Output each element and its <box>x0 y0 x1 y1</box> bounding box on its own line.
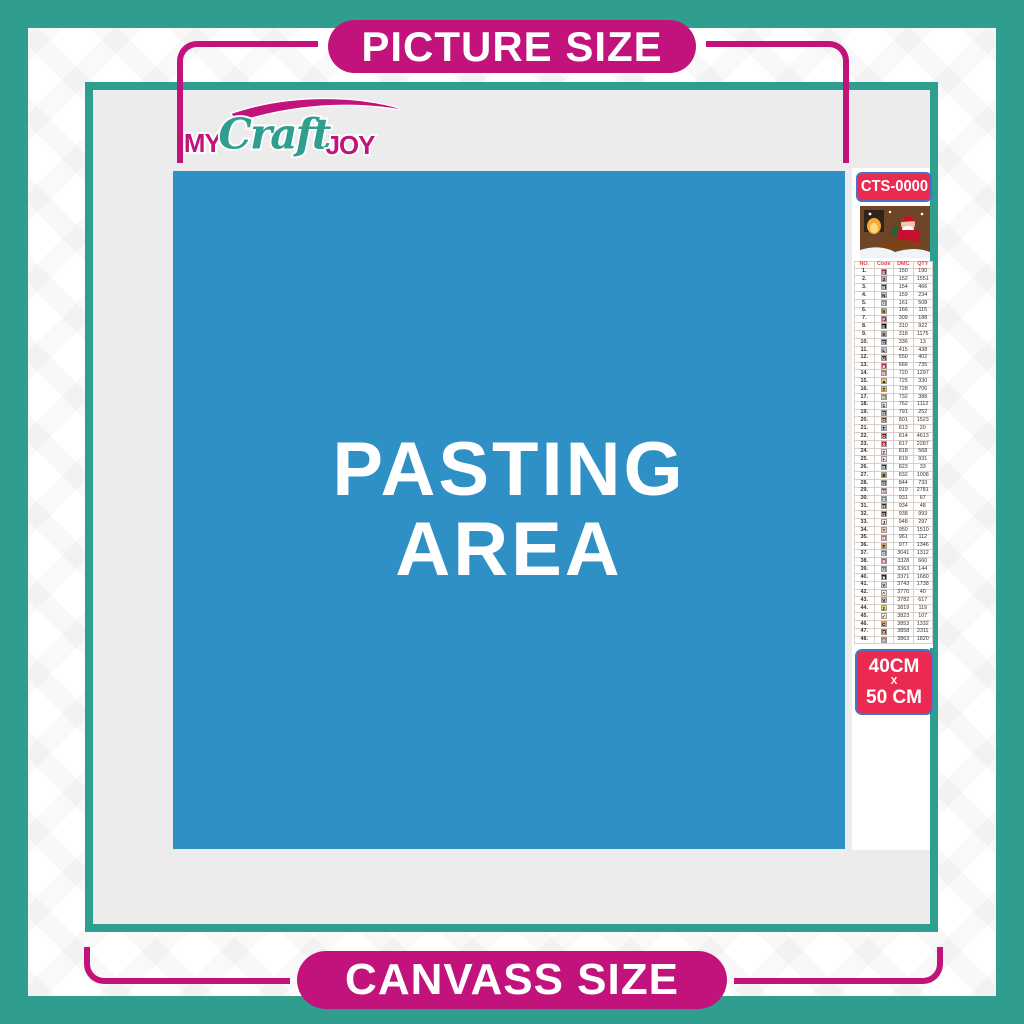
dmc-cell: 823 <box>894 464 914 472</box>
dmc-cell: 948 <box>894 519 914 527</box>
table-row: 7.F309188 <box>855 315 933 323</box>
qty-cell: 568 <box>913 448 933 456</box>
dmc-cell: 931 <box>894 495 914 503</box>
row-number: 10. <box>855 339 875 347</box>
color-symbol-swatch: + <box>881 456 887 462</box>
code-cell: U <box>874 566 894 574</box>
row-number: 41. <box>855 581 875 589</box>
sku-badge: CTS-0000 <box>856 172 932 202</box>
row-number: 29. <box>855 487 875 495</box>
thumb-snowflake <box>889 211 891 213</box>
code-cell: 3 <box>874 276 894 284</box>
dmc-cell: 3863 <box>894 636 914 644</box>
code-cell: G <box>874 511 894 519</box>
code-cell: E <box>874 268 894 276</box>
dmc-cell: 728 <box>894 386 914 394</box>
color-symbol-swatch: B <box>881 284 887 290</box>
color-symbol-swatch: J <box>881 519 887 525</box>
color-symbol-swatch: 2 <box>881 605 887 611</box>
table-row: 30.S93167 <box>855 495 933 503</box>
dmc-cell: 814 <box>894 432 914 440</box>
dmc-cell: 725 <box>894 378 914 386</box>
column-header: DMC <box>894 262 914 269</box>
dmc-cell: 3770 <box>894 589 914 597</box>
qty-cell: 1551 <box>913 276 933 284</box>
color-symbol-swatch: X <box>881 441 887 447</box>
code-cell: 7 <box>874 448 894 456</box>
code-cell: X <box>874 628 894 636</box>
qty-cell: 438 <box>913 346 933 354</box>
dmc-cell: 415 <box>894 346 914 354</box>
dmc-cell: 166 <box>894 307 914 315</box>
qty-cell: 252 <box>913 409 933 417</box>
qty-cell: 112 <box>913 534 933 542</box>
code-cell: J <box>874 519 894 527</box>
qty-cell: 1510 <box>913 526 933 534</box>
qty-cell: 733 <box>913 479 933 487</box>
dmc-cell: 150 <box>894 268 914 276</box>
code-cell: N <box>874 370 894 378</box>
table-row: 11.L415438 <box>855 346 933 354</box>
color-symbol-swatch: E <box>881 269 887 275</box>
code-cell: A <box>874 636 894 644</box>
color-symbol-swatch: ■ <box>881 574 887 580</box>
qty-cell: 1312 <box>913 550 933 558</box>
table-row: 20.O8011523 <box>855 417 933 425</box>
color-symbol-swatch: U <box>881 566 887 572</box>
row-number: 21. <box>855 425 875 433</box>
qty-cell: 735 <box>913 362 933 370</box>
code-cell: G <box>874 299 894 307</box>
column-header: NO. <box>855 262 875 269</box>
dmc-cell: 819 <box>894 456 914 464</box>
row-number: 40. <box>855 573 875 581</box>
dmc-cell: 817 <box>894 440 914 448</box>
table-row: 41.Y37431738 <box>855 581 933 589</box>
code-cell: O <box>874 432 894 440</box>
dmc-cell: 3041 <box>894 550 914 558</box>
color-symbol-swatch: A <box>881 637 887 643</box>
dmc-cell: 159 <box>894 292 914 300</box>
dmc-cell: 3782 <box>894 597 914 605</box>
code-cell: C <box>874 620 894 628</box>
qty-cell: 33 <box>913 464 933 472</box>
column-header: QTY <box>913 262 933 269</box>
canvass-size-banner: CANVASS SIZE <box>297 951 727 1009</box>
dmc-cell: 3853 <box>894 620 914 628</box>
dmc-cell: 336 <box>894 339 914 347</box>
picture-size-banner: PICTURE SIZE <box>328 20 696 73</box>
row-number: 2. <box>855 276 875 284</box>
qty-cell: 1820 <box>913 636 933 644</box>
table-row: 17.K732388 <box>855 393 933 401</box>
qty-cell: 188 <box>913 315 933 323</box>
dmc-cell: 3823 <box>894 613 914 621</box>
qty-cell: 2781 <box>913 487 933 495</box>
color-symbol-swatch: ✓ <box>881 613 887 619</box>
qty-cell: 13 <box>913 339 933 347</box>
color-symbol-swatch: 7 <box>881 386 887 392</box>
color-symbol-swatch: O <box>881 480 887 486</box>
table-row: 14.N7201297 <box>855 370 933 378</box>
qty-cell: 4613 <box>913 432 933 440</box>
color-symbol-swatch: Y <box>881 582 887 588</box>
table-row: 27.88321008 <box>855 472 933 480</box>
row-number: 36. <box>855 542 875 550</box>
canvass-size-bracket-right <box>734 947 943 984</box>
qty-cell: 297 <box>913 519 933 527</box>
color-chart-header-row: NO.CodeDMCQTY <box>855 262 933 269</box>
code-cell: D <box>874 409 894 417</box>
color-chart: NO.CodeDMCQTY 1.E1501902.315215513.B1544… <box>854 261 933 648</box>
code-cell: 9 <box>874 558 894 566</box>
color-symbol-swatch: L <box>881 347 887 353</box>
row-number: 47. <box>855 628 875 636</box>
code-cell: E <box>874 323 894 331</box>
size-width-label: 40CM <box>869 657 920 676</box>
row-number: 7. <box>855 315 875 323</box>
table-row: 47.X38582311 <box>855 628 933 636</box>
row-number: 46. <box>855 620 875 628</box>
table-row: 15.▲725330 <box>855 378 933 386</box>
table-row: 21.T81320 <box>855 425 933 433</box>
qty-cell: 20 <box>913 425 933 433</box>
table-row: 23.X8172287 <box>855 440 933 448</box>
table-row: 38.93328660 <box>855 558 933 566</box>
sku-label: CTS-0000 <box>860 178 927 196</box>
color-symbol-swatch: S <box>881 496 887 502</box>
thumb-fire-core <box>870 223 878 233</box>
row-number: 43. <box>855 597 875 605</box>
row-number: 44. <box>855 605 875 613</box>
row-number: 30. <box>855 495 875 503</box>
dmc-cell: 977 <box>894 542 914 550</box>
color-symbol-swatch: 9 <box>881 558 887 564</box>
row-number: 3. <box>855 284 875 292</box>
table-row: 45.✓3823107 <box>855 613 933 621</box>
row-number: 6. <box>855 307 875 315</box>
dmc-cell: 309 <box>894 315 914 323</box>
pasting-area: PASTING AREA <box>173 171 845 849</box>
color-symbol-swatch: E <box>881 323 887 329</box>
color-symbol-swatch: * <box>881 527 887 533</box>
dmc-cell: 844 <box>894 479 914 487</box>
dmc-cell: 318 <box>894 331 914 339</box>
picture-size-bracket-right <box>706 41 849 163</box>
table-row: 9.X3181175 <box>855 331 933 339</box>
color-symbol-swatch: h <box>881 308 887 314</box>
qty-cell: 1008 <box>913 472 933 480</box>
color-symbol-swatch: V <box>881 597 887 603</box>
code-cell: Y <box>874 581 894 589</box>
code-cell: + <box>874 456 894 464</box>
dmc-cell: 3819 <box>894 605 914 613</box>
dmc-cell: 934 <box>894 503 914 511</box>
pasting-area-line2: AREA <box>395 510 622 590</box>
color-symbol-swatch: O <box>881 417 887 423</box>
table-row: 24.7818568 <box>855 448 933 456</box>
qty-cell: 466 <box>913 284 933 292</box>
canvass-size-bracket-left <box>84 947 290 984</box>
code-cell: S <box>874 495 894 503</box>
row-number: 17. <box>855 393 875 401</box>
pasting-area-line1: PASTING <box>332 430 685 510</box>
color-symbol-swatch: D <box>881 339 887 345</box>
code-cell: ■ <box>874 362 894 370</box>
row-number: 19. <box>855 409 875 417</box>
color-symbol-swatch: N <box>881 292 887 298</box>
color-symbol-swatch: X <box>881 629 887 635</box>
dmc-cell: 3858 <box>894 628 914 636</box>
color-symbol-swatch: K <box>881 394 887 400</box>
row-number: 11. <box>855 346 875 354</box>
code-cell: 8 <box>874 472 894 480</box>
table-row: 40.■33711680 <box>855 573 933 581</box>
dmc-cell: 791 <box>894 409 914 417</box>
code-cell: B <box>874 464 894 472</box>
table-row: 37.D30411312 <box>855 550 933 558</box>
table-row: 26.B82333 <box>855 464 933 472</box>
dmc-cell: 950 <box>894 526 914 534</box>
code-cell: h <box>874 307 894 315</box>
qty-cell: 388 <box>913 393 933 401</box>
dmc-cell: 732 <box>894 393 914 401</box>
table-row: 16.7728706 <box>855 386 933 394</box>
row-number: 48. <box>855 636 875 644</box>
table-row: 29.M9192781 <box>855 487 933 495</box>
color-symbol-swatch: B <box>881 464 887 470</box>
qty-cell: 1297 <box>913 370 933 378</box>
qty-cell: 660 <box>913 558 933 566</box>
row-number: 28. <box>855 479 875 487</box>
logo-word-joy: JOY <box>326 132 376 160</box>
row-number: 31. <box>855 503 875 511</box>
table-row: 8.E310922 <box>855 323 933 331</box>
qty-cell: 1112 <box>913 401 933 409</box>
qty-cell: 931 <box>913 456 933 464</box>
row-number: 16. <box>855 386 875 394</box>
code-cell: R <box>874 534 894 542</box>
row-number: 4. <box>855 292 875 300</box>
table-row: 13.■666735 <box>855 362 933 370</box>
table-row: 19.D791252 <box>855 409 933 417</box>
code-cell: ■ <box>874 573 894 581</box>
table-row: 36.T9771346 <box>855 542 933 550</box>
qty-cell: 402 <box>913 354 933 362</box>
code-cell: V <box>874 597 894 605</box>
size-badge: 40CM X 50 CM <box>855 649 933 715</box>
qty-cell: 922 <box>913 323 933 331</box>
code-cell: ✓ <box>874 613 894 621</box>
code-cell: B <box>874 284 894 292</box>
color-symbol-swatch: N <box>881 370 887 376</box>
color-symbol-swatch: G <box>881 511 887 517</box>
dmc-cell: 961 <box>894 534 914 542</box>
dmc-cell: 762 <box>894 401 914 409</box>
dmc-cell: 818 <box>894 448 914 456</box>
qty-cell: 115 <box>913 307 933 315</box>
size-height-label: 50 CM <box>866 688 922 707</box>
dmc-cell: 310 <box>894 323 914 331</box>
code-cell: F <box>874 315 894 323</box>
dmc-cell: 919 <box>894 487 914 495</box>
color-symbol-swatch: M <box>881 488 887 494</box>
table-row: 32.G938993 <box>855 511 933 519</box>
table-row: 34.*9501510 <box>855 526 933 534</box>
row-number: 13. <box>855 362 875 370</box>
picture-size-label: PICTURE SIZE <box>361 23 662 71</box>
color-symbol-swatch: H <box>881 503 887 509</box>
color-symbol-swatch: 7 <box>881 449 887 455</box>
table-row: 18.17621112 <box>855 401 933 409</box>
code-cell: T <box>874 425 894 433</box>
table-row: 4.N159234 <box>855 292 933 300</box>
code-cell: D <box>874 550 894 558</box>
qty-cell: 234 <box>913 292 933 300</box>
dmc-cell: 938 <box>894 511 914 519</box>
row-number: 38. <box>855 558 875 566</box>
table-row: 6.h166115 <box>855 307 933 315</box>
row-number: 1. <box>855 268 875 276</box>
qty-cell: 330 <box>913 378 933 386</box>
color-symbol-swatch: G <box>881 300 887 306</box>
table-row: 3.B154466 <box>855 284 933 292</box>
color-symbol-swatch: T <box>881 543 887 549</box>
table-row: 43.V3782617 <box>855 597 933 605</box>
row-number: 18. <box>855 401 875 409</box>
qty-cell: 1346 <box>913 542 933 550</box>
row-number: 20. <box>855 417 875 425</box>
row-number: 9. <box>855 331 875 339</box>
dmc-cell: 666 <box>894 362 914 370</box>
dmc-cell: 3363 <box>894 566 914 574</box>
row-number: 8. <box>855 323 875 331</box>
code-cell: K <box>874 393 894 401</box>
picture-size-bracket-left <box>177 41 318 163</box>
code-cell: ▲ <box>874 378 894 386</box>
qty-cell: 40 <box>913 589 933 597</box>
table-row: 35.R961112 <box>855 534 933 542</box>
thumb-snowflake <box>869 213 872 216</box>
dmc-cell: 161 <box>894 299 914 307</box>
thumb-snowflake <box>921 213 924 216</box>
dmc-cell: 3371 <box>894 573 914 581</box>
row-number: 42. <box>855 589 875 597</box>
dmc-cell: 832 <box>894 472 914 480</box>
table-row: 22.O8144613 <box>855 432 933 440</box>
code-cell: O <box>874 417 894 425</box>
code-cell: U <box>874 354 894 362</box>
color-symbol-swatch: U <box>881 355 887 361</box>
code-cell: 1 <box>874 401 894 409</box>
qty-cell: 2311 <box>913 628 933 636</box>
table-row: 46.C38531332 <box>855 620 933 628</box>
color-symbol-swatch: R <box>881 535 887 541</box>
row-number: 27. <box>855 472 875 480</box>
qty-cell: 144 <box>913 566 933 574</box>
dmc-cell: 3743 <box>894 581 914 589</box>
color-symbol-swatch: 8 <box>881 472 887 478</box>
row-number: 25. <box>855 456 875 464</box>
row-number: 24. <box>855 448 875 456</box>
table-row: 33.J948297 <box>855 519 933 527</box>
table-row: 2.31521551 <box>855 276 933 284</box>
qty-cell: 617 <box>913 597 933 605</box>
row-number: 14. <box>855 370 875 378</box>
row-number: 22. <box>855 432 875 440</box>
dmc-cell: 550 <box>894 354 914 362</box>
column-header: Code <box>874 262 894 269</box>
table-row: 48.A38631820 <box>855 636 933 644</box>
qty-cell: 1175 <box>913 331 933 339</box>
row-number: 5. <box>855 299 875 307</box>
row-number: 39. <box>855 566 875 574</box>
row-number: 37. <box>855 550 875 558</box>
table-row: 31.H93448 <box>855 503 933 511</box>
qty-cell: 706 <box>913 386 933 394</box>
table-row: 28.O844733 <box>855 479 933 487</box>
table-row: 5.G161508 <box>855 299 933 307</box>
table-row: 25.+819931 <box>855 456 933 464</box>
code-cell: * <box>874 526 894 534</box>
row-number: 33. <box>855 519 875 527</box>
code-cell: O <box>874 479 894 487</box>
row-number: 15. <box>855 378 875 386</box>
code-cell: N <box>874 292 894 300</box>
code-cell: 2 <box>874 605 894 613</box>
color-symbol-swatch: D <box>881 410 887 416</box>
dmc-cell: 3328 <box>894 558 914 566</box>
dmc-cell: 801 <box>894 417 914 425</box>
table-row: 1.E150190 <box>855 268 933 276</box>
qty-cell: 67 <box>913 495 933 503</box>
table-row: 10.D33613 <box>855 339 933 347</box>
table-row: 42.^377040 <box>855 589 933 597</box>
dmc-cell: 152 <box>894 276 914 284</box>
color-symbol-swatch: X <box>881 331 887 337</box>
qty-cell: 2287 <box>913 440 933 448</box>
code-cell: X <box>874 331 894 339</box>
row-number: 32. <box>855 511 875 519</box>
color-symbol-swatch: T <box>881 425 887 431</box>
color-symbol-swatch: C <box>881 621 887 627</box>
code-cell: H <box>874 503 894 511</box>
color-symbol-swatch: F <box>881 316 887 322</box>
dmc-cell: 813 <box>894 425 914 433</box>
qty-cell: 1523 <box>913 417 933 425</box>
row-number: 45. <box>855 613 875 621</box>
color-symbol-swatch: 1 <box>881 402 887 408</box>
design-thumbnail <box>860 206 930 258</box>
color-symbol-swatch: ■ <box>881 363 887 369</box>
row-number: 26. <box>855 464 875 472</box>
table-row: 12.U550402 <box>855 354 933 362</box>
dmc-cell: 720 <box>894 370 914 378</box>
row-number: 35. <box>855 534 875 542</box>
qty-cell: 107 <box>913 613 933 621</box>
size-separator: X <box>891 677 898 687</box>
color-symbol-swatch: 3 <box>881 276 887 282</box>
code-cell: X <box>874 440 894 448</box>
code-cell: 7 <box>874 386 894 394</box>
qty-cell: 1332 <box>913 620 933 628</box>
canvass-size-label: CANVASS SIZE <box>345 955 679 1005</box>
color-symbol-swatch: ▲ <box>881 378 887 384</box>
code-cell: D <box>874 339 894 347</box>
code-cell: T <box>874 542 894 550</box>
code-cell: L <box>874 346 894 354</box>
dmc-cell: 154 <box>894 284 914 292</box>
